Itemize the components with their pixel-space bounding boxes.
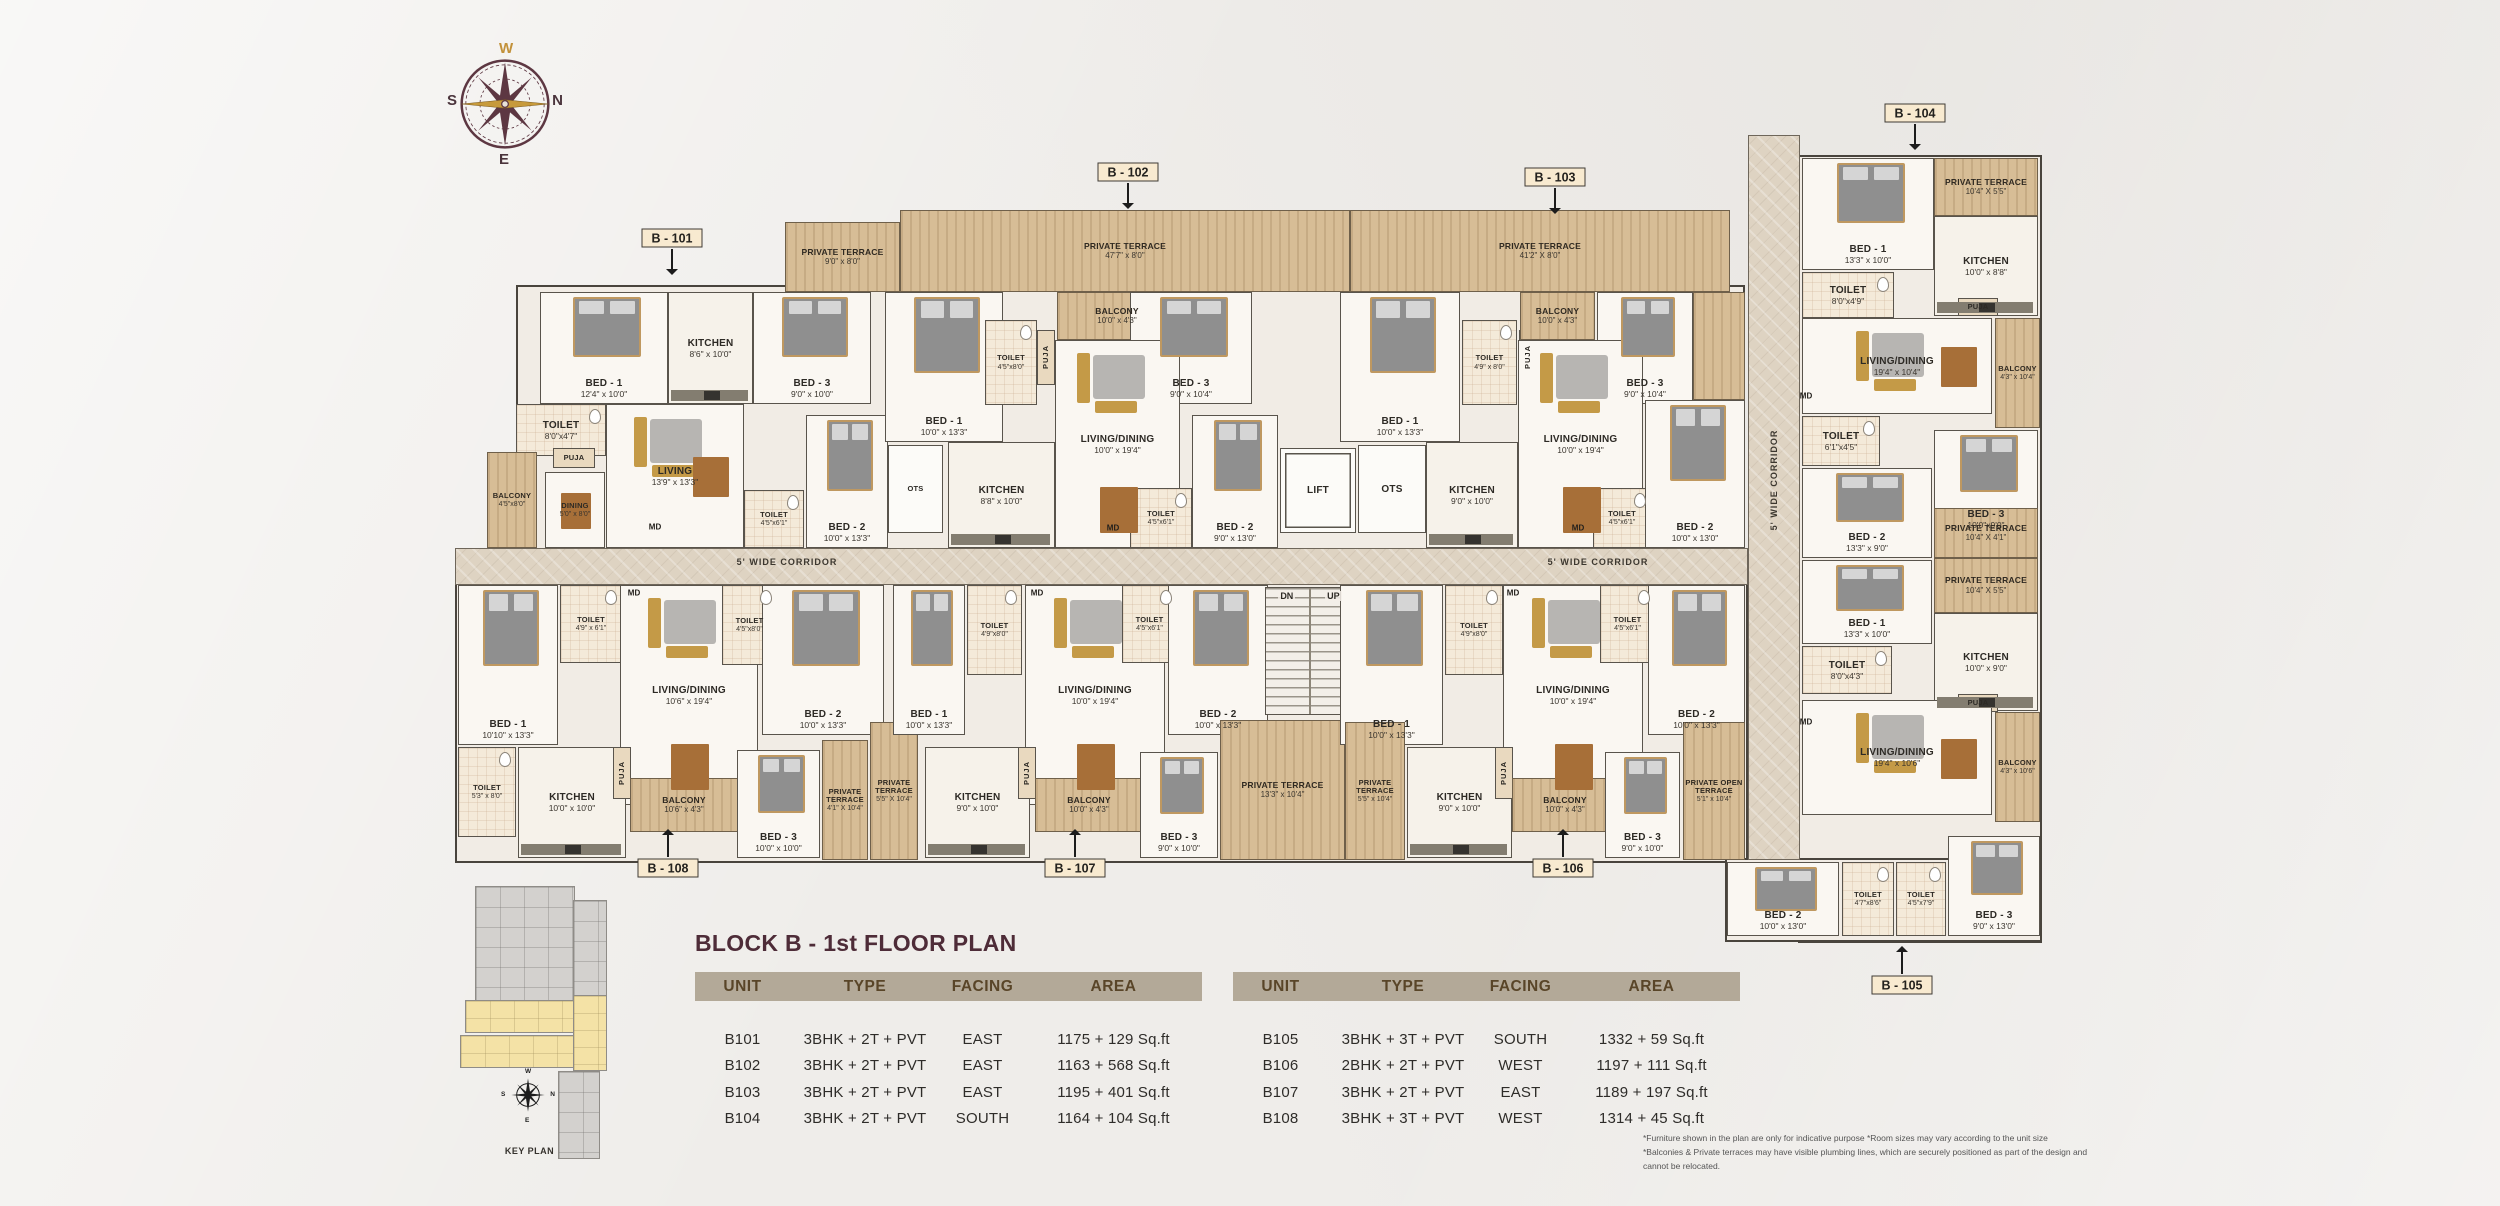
room-toilet: TOILET6'1"x4'5" bbox=[1802, 416, 1880, 466]
table-row: B1033BHK + 2T + PVTEAST1195 + 401 Sq.ft bbox=[695, 1079, 1202, 1106]
room-dimensions: 10'0" x 9'0" bbox=[1965, 664, 2007, 673]
unit-tag-arrow bbox=[666, 269, 678, 281]
room-dimensions: 10'0" x 13'3" bbox=[1673, 721, 1720, 730]
room-living-dining: LIVING/DINING19'4" x 10'6" bbox=[1802, 700, 1992, 815]
room-toilet: TOILET4'9"x8'0" bbox=[1445, 585, 1503, 675]
room-dimensions: 5'5" X 10'4" bbox=[876, 796, 912, 803]
room-bed-3: BED - 39'0" x 10'0" bbox=[1140, 752, 1218, 858]
room-dimensions: 10'0" x 4'3" bbox=[1538, 317, 1577, 325]
stove-icon bbox=[995, 535, 1011, 544]
room-dimensions: 6'1"x4'5" bbox=[1825, 443, 1857, 452]
room-name: LIVING/DINING bbox=[1860, 356, 1934, 367]
room-name: TOILET bbox=[1147, 510, 1175, 518]
room-name: BALCONY bbox=[493, 492, 531, 500]
room-dimensions: 9'0" x 13'0" bbox=[1214, 534, 1256, 543]
bed-icon bbox=[782, 297, 847, 357]
room-name: OTS bbox=[1381, 484, 1402, 495]
room-name: PUJA bbox=[1500, 761, 1508, 785]
floor-plan-canvas: W N S E W N S E KEY PLAN 5' WIDE CORRIDO… bbox=[0, 0, 2500, 1206]
toilet-wc-icon bbox=[1175, 493, 1187, 508]
room-private-terrace: PRIVATE TERRACE5'5" X 10'4" bbox=[870, 722, 918, 860]
stairs-down-label: DN bbox=[1278, 591, 1295, 601]
room-private-terrace: PRIVATE TERRACE41'2" X 8'0" bbox=[1350, 210, 1730, 292]
sofa-icon bbox=[1558, 401, 1600, 413]
room-dimensions: 9'0" x 10'4" bbox=[1624, 390, 1666, 399]
table-cell: SOUTH bbox=[940, 1110, 1025, 1127]
bed-icon bbox=[1366, 590, 1424, 666]
toilet-wc-icon bbox=[1020, 325, 1032, 340]
room-dimensions: 5'3" x 8'0" bbox=[472, 793, 503, 800]
room-living-dining: LIVING/DINING19'4" x 10'4" bbox=[1802, 318, 1992, 414]
table-header-row: UNITTYPEFACINGAREA bbox=[1233, 972, 1740, 1001]
toilet-wc-icon bbox=[499, 752, 511, 767]
room-dimensions: 10'0" x 13'3" bbox=[906, 721, 953, 730]
room-balcony: BALCONY4'5"x8'0" bbox=[487, 452, 537, 548]
room-dimensions: 9'0" x 13'0" bbox=[1973, 922, 2015, 931]
room-bed-1: BED - 110'0" x 13'3" bbox=[1340, 585, 1443, 745]
unit-tag-108: B - 108 bbox=[638, 859, 699, 878]
bed-icon bbox=[1214, 420, 1263, 491]
room-name: DINING bbox=[561, 502, 588, 510]
room-dimensions: 10'0" x 13'3" bbox=[800, 721, 847, 730]
room-balcony: BALCONY4'3" x 10'4" bbox=[1995, 318, 2040, 428]
rug-icon bbox=[1093, 355, 1145, 399]
room-dimensions: 4'7"x8'6" bbox=[1855, 900, 1882, 907]
room-name: LIVING/DINING bbox=[1536, 685, 1610, 696]
table-cell: 1164 + 104 Sq.ft bbox=[1025, 1110, 1202, 1127]
room-name: TOILET bbox=[1476, 354, 1504, 362]
unit-tag-arrow bbox=[667, 835, 669, 857]
room-name: PRIVATE TERRACE bbox=[1945, 524, 2027, 533]
room-puja: PUJA bbox=[613, 747, 631, 799]
room-dimensions: 5'5" x 10'4" bbox=[1358, 796, 1393, 803]
unit-tag-arrow bbox=[1901, 952, 1903, 974]
room-toilet: TOILET4'9" x 6'1" bbox=[560, 585, 622, 663]
room-dimensions: 4'5"x8'0" bbox=[998, 364, 1025, 371]
unit-tag-arrow bbox=[1914, 124, 1916, 146]
room-dimensions: 9'0" x 10'0" bbox=[1451, 497, 1493, 506]
room-name: TOILET bbox=[1460, 622, 1488, 630]
room-dimensions: 4'3" x 10'6" bbox=[2000, 768, 2035, 775]
room-ots: OTS bbox=[1358, 445, 1426, 533]
room-name: BED - 3 bbox=[1161, 832, 1198, 843]
toilet-wc-icon bbox=[589, 409, 601, 424]
toilet-wc-icon bbox=[1875, 651, 1887, 666]
bed-icon bbox=[483, 590, 539, 666]
room-dimensions: 10'0" x 4'3" bbox=[1097, 317, 1136, 325]
room-dimensions: 10'0" x 19'4" bbox=[1550, 697, 1597, 706]
room-bed-2: BED - 210'0" x 13'3" bbox=[806, 415, 888, 548]
room-name: KITCHEN bbox=[1963, 652, 2009, 663]
door-label: MD bbox=[1107, 524, 1119, 533]
room-dimensions: 10'4" X 4'1" bbox=[1966, 534, 2007, 542]
room-name: PUJA bbox=[1023, 761, 1031, 785]
table-cell: 1175 + 129 Sq.ft bbox=[1025, 1031, 1202, 1048]
room-dimensions: 10'0" x 13'0" bbox=[1672, 534, 1719, 543]
room-name: TOILET bbox=[736, 617, 764, 625]
rug-icon bbox=[664, 600, 716, 644]
room-dimensions: 10'0" x 10'0" bbox=[755, 844, 802, 853]
room-private-terrace: PRIVATE TERRACE47'7" x 8'0" bbox=[900, 210, 1350, 292]
stove-icon bbox=[1465, 535, 1481, 544]
unit-tag-102: B - 102 bbox=[1098, 163, 1159, 182]
room-dimensions: 4'1" X 10'4" bbox=[827, 805, 863, 812]
room-bed-1: BED - 110'0" x 13'3" bbox=[1340, 292, 1460, 442]
room-name: BED - 3 bbox=[1976, 910, 2013, 921]
room-dimensions: 9'0" x 10'0" bbox=[1439, 804, 1481, 813]
room-dimensions: 4'5"x6'1" bbox=[1609, 519, 1636, 526]
room-name: TOILET bbox=[1830, 285, 1867, 296]
table-cell: 3BHK + 2T + PVT bbox=[790, 1084, 940, 1101]
table-cell: 3BHK + 3T + PVT bbox=[1328, 1110, 1478, 1127]
toilet-wc-icon bbox=[1500, 325, 1512, 340]
room-name: LIVING/DINING bbox=[1544, 434, 1618, 445]
bed-icon bbox=[1836, 473, 1904, 522]
room-bed-3: BED - 39'0" x 10'0" bbox=[753, 292, 871, 404]
room-name: PUJA bbox=[1524, 345, 1532, 369]
room-name: TOILET bbox=[473, 784, 501, 792]
room-dimensions: 13'3" x 10'0" bbox=[1844, 630, 1891, 639]
room-name: BED - 3 bbox=[760, 832, 797, 843]
room-name: PRIVATE TERRACE bbox=[1499, 242, 1581, 251]
footnote-line: *Furniture shown in the plan are only fo… bbox=[1643, 1131, 2103, 1145]
room-name: BED - 2 bbox=[1200, 709, 1237, 720]
room-puja: PUJA bbox=[553, 448, 595, 468]
room-living: LIVING13'9" x 13'3" bbox=[606, 404, 744, 548]
room-name: LIVING bbox=[658, 466, 693, 477]
bed-icon bbox=[758, 755, 805, 813]
bed-icon bbox=[1621, 297, 1675, 357]
room-kitchen: KITCHEN9'0" x 10'0" bbox=[1426, 442, 1518, 548]
unit-tag-101: B - 101 bbox=[642, 229, 703, 248]
sofa-icon bbox=[1077, 353, 1090, 403]
room-toilet: TOILET8'0"x4'3" bbox=[1802, 646, 1892, 694]
toilet-wc-icon bbox=[1929, 867, 1941, 882]
room-puja: PUJA bbox=[1037, 330, 1055, 385]
unit-tag-arrow bbox=[1069, 823, 1081, 835]
key-plan-block bbox=[475, 886, 575, 1004]
room-dimensions: 10'0" x 13'0" bbox=[1760, 922, 1807, 931]
room-dimensions: 4'9"x8'0" bbox=[981, 631, 1008, 638]
room-terrace bbox=[1693, 292, 1745, 400]
room-name: TOILET bbox=[1854, 891, 1882, 899]
room-toilet: TOILET4'5"x6'1" bbox=[1130, 488, 1192, 548]
room-name: BALCONY bbox=[1536, 307, 1579, 316]
table-cell: B103 bbox=[695, 1084, 790, 1101]
room-kitchen: KITCHEN8'6" x 10'0" bbox=[668, 292, 753, 404]
door-label: MD bbox=[1507, 589, 1519, 598]
room-dimensions: 4'5"x6'1" bbox=[1136, 625, 1163, 632]
rug-icon bbox=[1548, 600, 1600, 644]
room-dimensions: 4'5"x6'1" bbox=[1614, 625, 1641, 632]
unit-tag-arrow bbox=[1127, 183, 1129, 205]
room-name: LIVING/DINING bbox=[1081, 434, 1155, 445]
bed-icon bbox=[914, 297, 979, 373]
room-name: PUJA bbox=[618, 761, 626, 785]
sofa-icon bbox=[1054, 598, 1067, 648]
room-name: PRIVATE TERRACE bbox=[1241, 781, 1323, 790]
room-kitchen: KITCHEN8'8" x 10'0" bbox=[948, 442, 1055, 548]
table-header-cell: FACING bbox=[1478, 978, 1563, 996]
unit-table-right: UNITTYPEFACINGAREAB1053BHK + 3T + PVTSOU… bbox=[1233, 972, 1740, 1132]
room-name: LIFT bbox=[1307, 485, 1329, 496]
room-dimensions: 10'0" x 13'3" bbox=[921, 428, 968, 437]
room-name: BED - 2 bbox=[829, 522, 866, 533]
unit-tag-arrow bbox=[1554, 188, 1556, 210]
room-dimensions: 10'0" x 13'3" bbox=[1195, 721, 1242, 730]
bed-icon bbox=[1836, 565, 1904, 611]
unit-tag-arrow bbox=[1557, 823, 1569, 835]
dining-table-icon bbox=[693, 457, 729, 497]
table-cell: 1314 + 45 Sq.ft bbox=[1563, 1110, 1740, 1127]
room-name: TOILET bbox=[1823, 431, 1860, 442]
room-dimensions: 10'0" x 19'4" bbox=[1557, 446, 1604, 455]
room-name: TOILET bbox=[760, 511, 788, 519]
room-name: BED - 1 bbox=[1373, 719, 1410, 730]
table-cell: 2BHK + 2T + PVT bbox=[1328, 1057, 1478, 1074]
room-toilet: TOILET4'7"x8'6" bbox=[1842, 862, 1894, 936]
room-dimensions: 9'0" x 10'0" bbox=[1158, 844, 1200, 853]
room-kitchen: KITCHEN10'0" x 10'0" bbox=[518, 747, 626, 858]
room-dimensions: 10'6" x 19'4" bbox=[666, 697, 713, 706]
room-bed-1: BED - 112'4" x 10'0" bbox=[540, 292, 668, 404]
toilet-wc-icon bbox=[1634, 493, 1646, 508]
table-body: B1013BHK + 2T + PVTEAST1175 + 129 Sq.ftB… bbox=[695, 1026, 1202, 1132]
room-dimensions: 4'3" x 10'4" bbox=[2000, 374, 2035, 381]
room-name: BED - 3 bbox=[1968, 509, 2005, 520]
room-private-open-terrace: PRIVATE OPEN TERRACE5'1" x 10'4" bbox=[1683, 722, 1745, 860]
bed-icon bbox=[792, 590, 859, 666]
room-dimensions: 4'5"x8'0" bbox=[736, 626, 763, 633]
room-name: KITCHEN bbox=[1449, 485, 1495, 496]
bed-icon bbox=[1755, 867, 1817, 911]
room-private-terrace: PRIVATE TERRACE10'4" X 5'5" bbox=[1934, 558, 2038, 613]
room-name: BALCONY bbox=[1998, 365, 2036, 373]
door-label: MD bbox=[628, 589, 640, 598]
room-name: BALCONY bbox=[662, 796, 705, 805]
unit-tag-104: B - 104 bbox=[1885, 104, 1946, 123]
corridor-label: 5' WIDE CORRIDOR bbox=[1548, 557, 1649, 567]
sofa-icon bbox=[648, 598, 661, 648]
toilet-wc-icon bbox=[1638, 590, 1650, 605]
room-balcony: BALCONY4'3" x 10'6" bbox=[1995, 712, 2040, 822]
toilet-wc-icon bbox=[605, 590, 617, 605]
bed-icon bbox=[911, 590, 952, 666]
table-header-cell: FACING bbox=[940, 978, 1025, 996]
footnote-line: *Balconies & Private terraces may have v… bbox=[1643, 1145, 2103, 1173]
unit-tag-arrow bbox=[1549, 208, 1561, 220]
room-name: TOILET bbox=[1614, 616, 1642, 624]
room-toilet: TOILET4'5"x6'1" bbox=[744, 490, 804, 548]
toilet-wc-icon bbox=[1160, 590, 1172, 605]
compass-east-label: E bbox=[499, 151, 509, 168]
dining-table-icon bbox=[1077, 744, 1115, 790]
room-name: LIVING/DINING bbox=[1860, 747, 1934, 758]
room-name: PUJA bbox=[1968, 303, 1989, 311]
room-name: BALCONY bbox=[1067, 796, 1110, 805]
sofa-icon bbox=[634, 417, 647, 467]
room-dimensions: 10'0" x 8'8" bbox=[1965, 268, 2007, 277]
key-plan-highlighted-block bbox=[460, 1035, 575, 1068]
toilet-wc-icon bbox=[1877, 277, 1889, 292]
table-header-cell: UNIT bbox=[695, 978, 790, 996]
room-dimensions: 10'0" x 4'3" bbox=[1069, 806, 1108, 814]
table-cell: 1195 + 401 Sq.ft bbox=[1025, 1084, 1202, 1101]
toilet-wc-icon bbox=[787, 495, 799, 510]
room-name: BED - 1 bbox=[1850, 244, 1887, 255]
compass-rose: W N S E bbox=[445, 42, 565, 168]
compass-star-icon bbox=[455, 54, 555, 154]
room-bed-2: BED - 210'0" x 13'3" bbox=[1168, 585, 1268, 735]
room-dimensions: 10'0" x 19'4" bbox=[1094, 446, 1141, 455]
room-dimensions: 10'10" x 13'3" bbox=[482, 731, 533, 740]
room-dimensions: 4'9" x 6'1" bbox=[576, 625, 607, 632]
room-dimensions: 9'0" x 10'0" bbox=[791, 390, 833, 399]
door-label: MD bbox=[1572, 524, 1584, 533]
sofa-icon bbox=[1874, 379, 1916, 391]
room-name: PRIVATE TERRACE bbox=[1347, 779, 1403, 796]
table-cell: EAST bbox=[1478, 1084, 1563, 1101]
unit-tag-arrow bbox=[662, 823, 674, 835]
room-dimensions: 41'2" X 8'0" bbox=[1520, 252, 1561, 260]
table-cell: 1332 + 59 Sq.ft bbox=[1563, 1031, 1740, 1048]
room-name: BED - 1 bbox=[490, 719, 527, 730]
table-cell: B102 bbox=[695, 1057, 790, 1074]
room-name: BED - 1 bbox=[911, 709, 948, 720]
room-dimensions: 5'1" x 10'4" bbox=[1697, 796, 1732, 803]
rug-icon bbox=[1070, 600, 1122, 644]
room-name: BED - 2 bbox=[1849, 532, 1886, 543]
room-name: PRIVATE TERRACE bbox=[824, 788, 866, 805]
room-toilet: TOILET8'0"x4'9" bbox=[1802, 272, 1894, 318]
room-dimensions: 9'0" x 10'4" bbox=[1170, 390, 1212, 399]
room-dimensions: 19'4" x 10'6" bbox=[1874, 759, 1921, 768]
room-name: KITCHEN bbox=[688, 338, 734, 349]
stove-icon bbox=[1453, 845, 1469, 854]
room-dimensions: 10'4" X 5'5" bbox=[1966, 188, 2007, 196]
room-name: BED - 3 bbox=[1624, 832, 1661, 843]
room-name: KITCHEN bbox=[1963, 256, 2009, 267]
table-row: B1073BHK + 2T + PVTEAST1189 + 197 Sq.ft bbox=[1233, 1079, 1740, 1106]
table-cell: 3BHK + 3T + PVT bbox=[1328, 1031, 1478, 1048]
keyplan-west-label: W bbox=[525, 1068, 531, 1075]
room-dimensions: 10'0" x 13'3" bbox=[1368, 731, 1415, 740]
bed-icon bbox=[1837, 163, 1905, 223]
room-bed-2: BED - 29'0" x 13'0" bbox=[1192, 415, 1278, 548]
table-cell: B105 bbox=[1233, 1031, 1328, 1048]
sofa-icon bbox=[1532, 598, 1545, 648]
table-cell: WEST bbox=[1478, 1110, 1563, 1127]
unit-tag-arrow bbox=[1074, 835, 1076, 857]
table-header-cell: TYPE bbox=[790, 978, 940, 996]
table-cell: 3BHK + 2T + PVT bbox=[790, 1110, 940, 1127]
room-bed-3: BED - 310'0" x 10'0" bbox=[737, 750, 820, 858]
table-cell: EAST bbox=[940, 1057, 1025, 1074]
keyplan-east-label: E bbox=[525, 1117, 529, 1124]
room-dimensions: 10'0" x 10'0" bbox=[549, 804, 596, 813]
table-cell: WEST bbox=[1478, 1057, 1563, 1074]
room-name: TOILET bbox=[997, 354, 1025, 362]
room-name: BED - 1 bbox=[1849, 618, 1886, 629]
room-dimensions: 4'5"x8'0" bbox=[499, 501, 526, 508]
room-bed-1: BED - 113'3" x 10'0" bbox=[1802, 158, 1934, 270]
room-name: PRIVATE TERRACE bbox=[1945, 576, 2027, 585]
table-cell: EAST bbox=[940, 1084, 1025, 1101]
room-name: BED - 2 bbox=[1217, 522, 1254, 533]
room-dimensions: 4'9"x8'0" bbox=[1461, 631, 1488, 638]
key-plan: W N S E KEY PLAN bbox=[460, 878, 630, 1168]
room-name: KITCHEN bbox=[979, 485, 1025, 496]
table-cell: B107 bbox=[1233, 1084, 1328, 1101]
room-dimensions: 8'0"x4'7" bbox=[545, 432, 577, 441]
room-name: BED - 3 bbox=[794, 378, 831, 389]
room-dimensions: 5'0" x 8'0" bbox=[560, 511, 591, 518]
room-name: BED - 1 bbox=[1382, 416, 1419, 427]
table-row: B1062BHK + 2T + PVTWEST1197 + 111 Sq.ft bbox=[1233, 1053, 1740, 1080]
toilet-wc-icon bbox=[1877, 867, 1889, 882]
bed-icon bbox=[1193, 590, 1249, 666]
bed-icon bbox=[1670, 405, 1726, 481]
key-plan-highlighted-block bbox=[573, 995, 607, 1071]
toilet-wc-icon bbox=[1005, 590, 1017, 605]
room-toilet: TOILET4'9" x 8'0" bbox=[1462, 320, 1517, 405]
room-name: BALCONY bbox=[1543, 796, 1586, 805]
room-toilet: TOILET4'5"x8'0" bbox=[985, 320, 1037, 405]
room-toilet: TOILET4'9"x8'0" bbox=[967, 585, 1022, 675]
table-row: B1023BHK + 2T + PVTEAST1163 + 568 Sq.ft bbox=[695, 1053, 1202, 1080]
room-name: TOILET bbox=[577, 616, 605, 624]
room-bed-1: BED - 113'3" x 10'0" bbox=[1802, 560, 1932, 644]
room-private-terrace: PRIVATE TERRACE4'1" X 10'4" bbox=[822, 740, 868, 860]
room-dimensions: 13'3" x 10'4" bbox=[1261, 791, 1305, 799]
room-dimensions: 13'9" x 13'3" bbox=[652, 478, 699, 487]
room-dimensions: 4'5"x7'9" bbox=[1908, 900, 1935, 907]
room-dimensions: 8'0"x4'9" bbox=[1832, 297, 1864, 306]
room-name: TOILET bbox=[543, 420, 580, 431]
room-name: BED - 3 bbox=[1627, 378, 1664, 389]
room-name: BED - 1 bbox=[926, 416, 963, 427]
room-dimensions: 4'5"x6'1" bbox=[1148, 519, 1175, 526]
compass-west-label: W bbox=[499, 40, 513, 57]
room-dining: DINING5'0" x 8'0" bbox=[545, 472, 605, 548]
room-toilet: TOILET4'5"x7'9" bbox=[1896, 862, 1946, 936]
room-bed-2: BED - 210'0" x 13'3" bbox=[1648, 585, 1745, 735]
room-bed-2: BED - 210'0" x 13'0" bbox=[1645, 400, 1745, 548]
table-cell: EAST bbox=[940, 1031, 1025, 1048]
table-cell: B101 bbox=[695, 1031, 790, 1048]
bed-icon bbox=[573, 297, 641, 357]
table-row: B1083BHK + 3T + PVTWEST1314 + 45 Sq.ft bbox=[1233, 1106, 1740, 1133]
room-bed-2: BED - 210'0" x 13'0" bbox=[1727, 862, 1839, 936]
table-cell: B104 bbox=[695, 1110, 790, 1127]
room-name: PRIVATE TERRACE bbox=[1084, 242, 1166, 251]
room-dimensions: 4'5"x6'1" bbox=[761, 520, 788, 527]
table-header-cell: AREA bbox=[1025, 978, 1202, 996]
unit-tag-arrow bbox=[1562, 835, 1564, 857]
bed-icon bbox=[1160, 757, 1205, 814]
room-kitchen: KITCHEN10'0" x 9'0" bbox=[1934, 613, 2038, 711]
room-name: KITCHEN bbox=[1437, 792, 1483, 803]
table-row: B1053BHK + 3T + PVTSOUTH1332 + 59 Sq.ft bbox=[1233, 1026, 1740, 1053]
room-dimensions: 12'4" x 10'0" bbox=[581, 390, 628, 399]
room-bed-3: BED - 39'0" x 13'0" bbox=[1948, 836, 2040, 936]
compass-south-label: S bbox=[447, 92, 457, 109]
room-dimensions: 10'0" x 19'4" bbox=[1072, 697, 1119, 706]
footnotes: *Furniture shown in the plan are only fo… bbox=[1643, 1131, 2103, 1173]
room-dimensions: 4'9" x 8'0" bbox=[1474, 364, 1505, 371]
table-cell: SOUTH bbox=[1478, 1031, 1563, 1048]
room-toilet: TOILET4'5"x6'1" bbox=[1593, 488, 1651, 548]
